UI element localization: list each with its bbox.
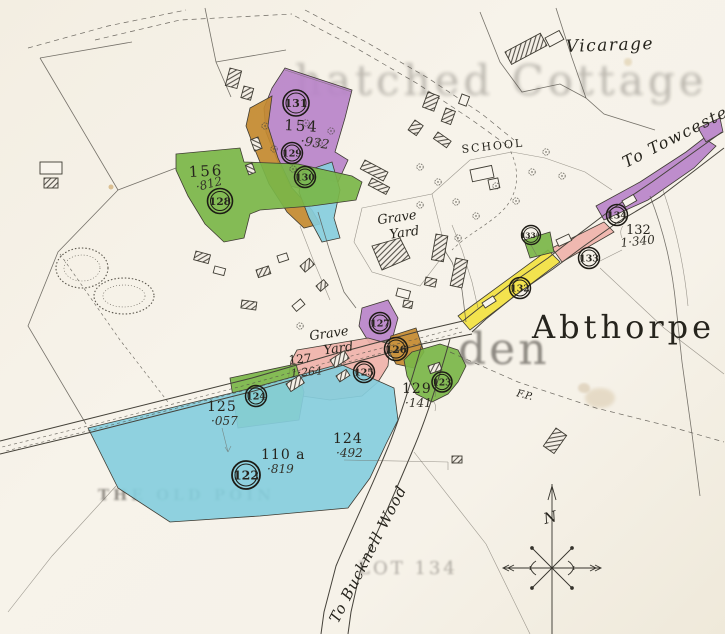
compass-rose: N (503, 484, 601, 634)
parcel-129-number: 129 (402, 381, 432, 397)
svg-text:Yard: Yard (389, 224, 421, 243)
svg-text:127: 127 (370, 319, 390, 330)
label-grave-yard-upper: Grave Yard (376, 208, 420, 244)
parcel-127-acreage: 1·264 (290, 364, 323, 380)
compass-north-label: N (541, 507, 560, 528)
svg-text:130: 130 (295, 173, 315, 184)
parcel-125-acreage: ·057 (211, 414, 238, 428)
lot-circle-133: 133 (579, 248, 600, 269)
map-canvas: hatched Cottage den THE OLD POIN LOT 134 (0, 0, 725, 634)
svg-text:129: 129 (282, 149, 302, 160)
svg-text:131: 131 (285, 97, 308, 110)
label-footpath: F.P. (514, 388, 534, 403)
label-abthorpe-title: Abthorpe (531, 308, 715, 346)
svg-text:134: 134 (607, 211, 627, 222)
parcel-129-acreage: ·141 (405, 396, 432, 410)
svg-text:133: 133 (579, 254, 599, 265)
parcel-124-acreage: ·492 (336, 446, 363, 460)
svg-text:122: 122 (233, 468, 259, 483)
parcel-110a-acreage: ·819 (267, 462, 294, 476)
svg-text:125: 125 (354, 368, 374, 379)
parcel-125-number: 125 (207, 399, 237, 415)
label-school: SCHOOL (461, 136, 525, 156)
svg-text:123: 123 (433, 379, 452, 389)
parcel-110a-number: 110 a (261, 447, 306, 463)
svg-text:124: 124 (246, 392, 266, 403)
svg-text:128: 128 (209, 196, 231, 208)
parcel-132-acreage: 1·340 (620, 232, 656, 250)
scrub-enclosures (56, 248, 154, 314)
label-vicarage: Vicarage (565, 34, 654, 57)
abthorpe-sale-plan-map: hatched Cottage den THE OLD POIN LOT 134 (0, 0, 725, 634)
svg-text:132: 132 (510, 284, 530, 295)
parcel-124-number: 124 (333, 431, 363, 447)
parcel-154-number: 154 (284, 116, 320, 136)
svg-text:126: 126 (385, 344, 407, 356)
